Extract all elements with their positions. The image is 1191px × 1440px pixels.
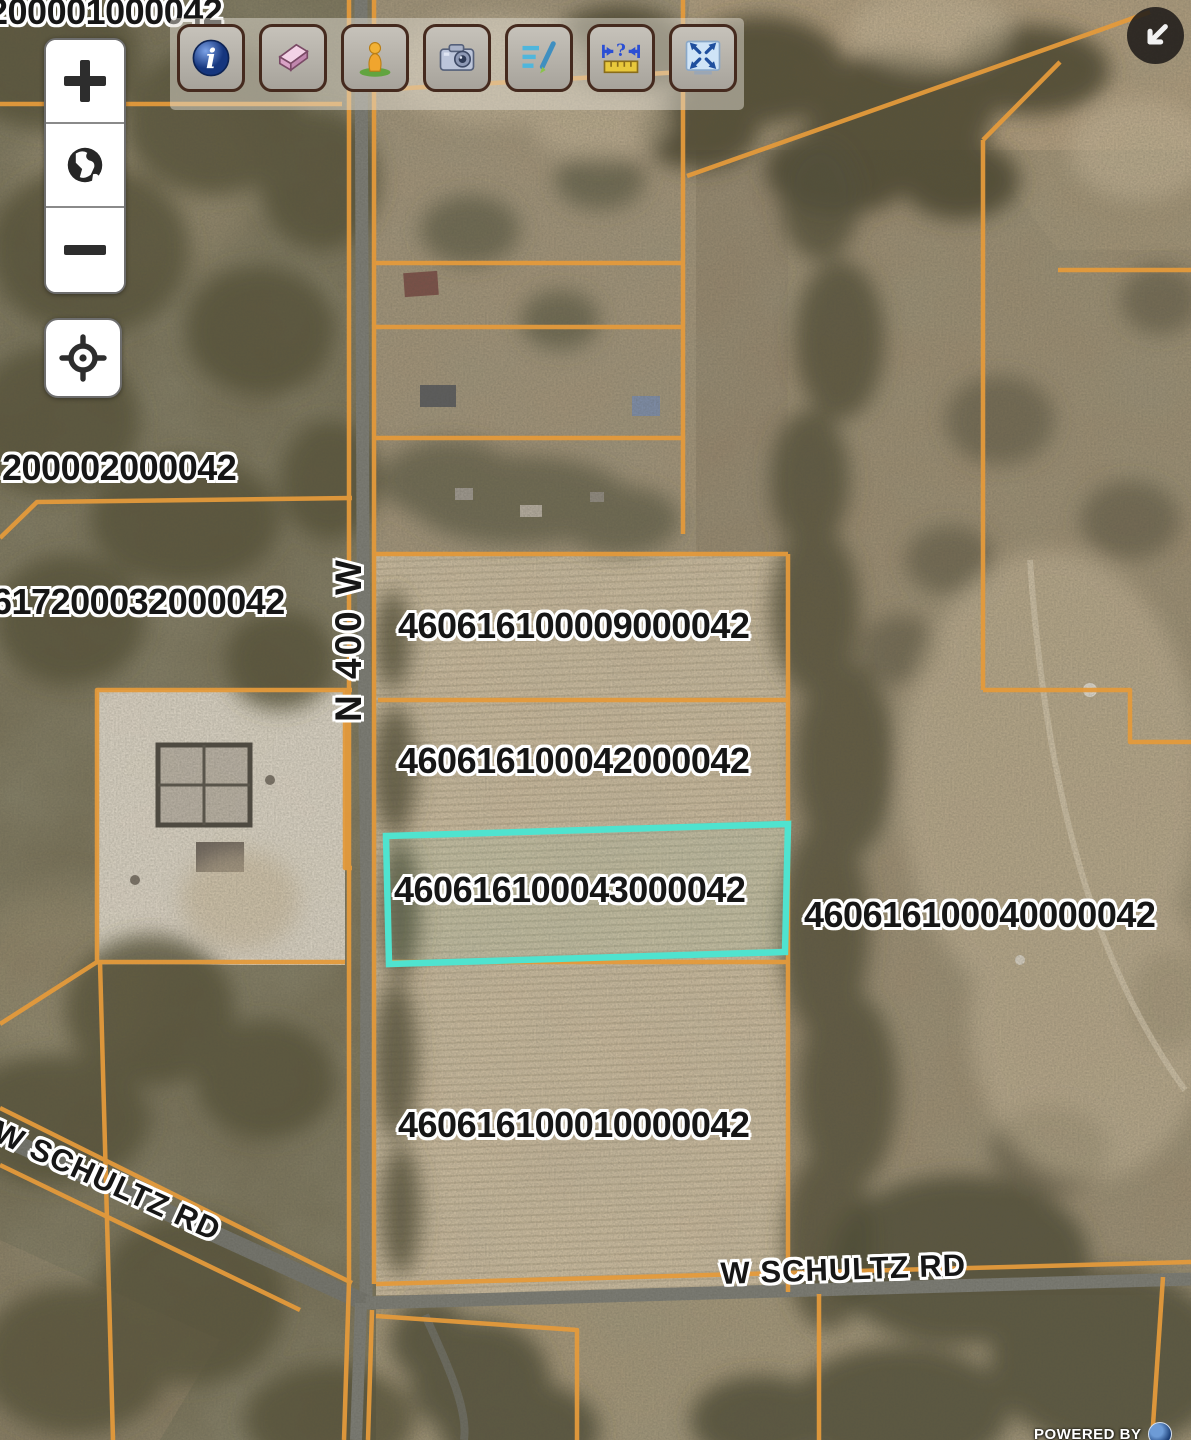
photo-button[interactable] xyxy=(423,24,491,92)
parcel-label-460616100042000042: 460616100042000042 xyxy=(398,743,749,779)
map-toolbar: i xyxy=(170,18,744,110)
minus-icon xyxy=(64,245,106,255)
powered-by-text: POWERED BY xyxy=(1034,1426,1142,1440)
zoom-control-stack xyxy=(44,38,126,294)
svg-text:?: ? xyxy=(616,41,626,60)
eraser-icon xyxy=(271,36,315,80)
svg-text:i: i xyxy=(206,43,216,75)
sketch-button[interactable] xyxy=(505,24,573,92)
parcel-label-460616100040000042: 460616100040000042 xyxy=(804,897,1155,933)
zoom-in-button[interactable] xyxy=(46,40,124,124)
person-icon xyxy=(353,36,397,80)
erase-button[interactable] xyxy=(259,24,327,92)
collapse-panel-button[interactable] xyxy=(1127,7,1184,64)
zoom-out-button[interactable] xyxy=(46,208,124,292)
streetview-button[interactable] xyxy=(341,24,409,92)
parcel-label-460616100009000042: 460616100009000042 xyxy=(398,608,749,644)
measure-icon: ? xyxy=(599,36,643,80)
parcel-label-460616100010000042: 460616100010000042 xyxy=(398,1107,749,1143)
locate-button[interactable] xyxy=(44,318,122,398)
road-label-schultz-east: W SCHULTZ RD xyxy=(720,1249,967,1289)
road-label-n400w: N 400 W xyxy=(330,557,367,722)
info-icon: i xyxy=(189,36,233,80)
identify-button[interactable]: i xyxy=(177,24,245,92)
attribution: POWERED BY xyxy=(1034,1422,1172,1440)
measure-button[interactable]: ? xyxy=(587,24,655,92)
crosshair-icon xyxy=(59,334,107,382)
powered-by-logo xyxy=(1148,1422,1172,1440)
extent-icon xyxy=(681,36,725,80)
camera-icon xyxy=(435,36,479,80)
home-extent-button[interactable] xyxy=(46,124,124,208)
arrow-southwest-icon xyxy=(1139,19,1173,53)
parcel-label-617200032000042: 617200032000042 xyxy=(0,584,285,620)
gis-map-viewer: 200001000042 200002000042 61720003200004… xyxy=(0,0,1191,1440)
parcel-label-200002000042: 200002000042 xyxy=(2,450,236,486)
parcel-label-460616100043000042: 460616100043000042 xyxy=(394,872,745,908)
full-extent-button[interactable] xyxy=(669,24,737,92)
plus-icon xyxy=(64,60,106,102)
globe-icon xyxy=(62,142,108,188)
sketch-icon xyxy=(517,36,561,80)
